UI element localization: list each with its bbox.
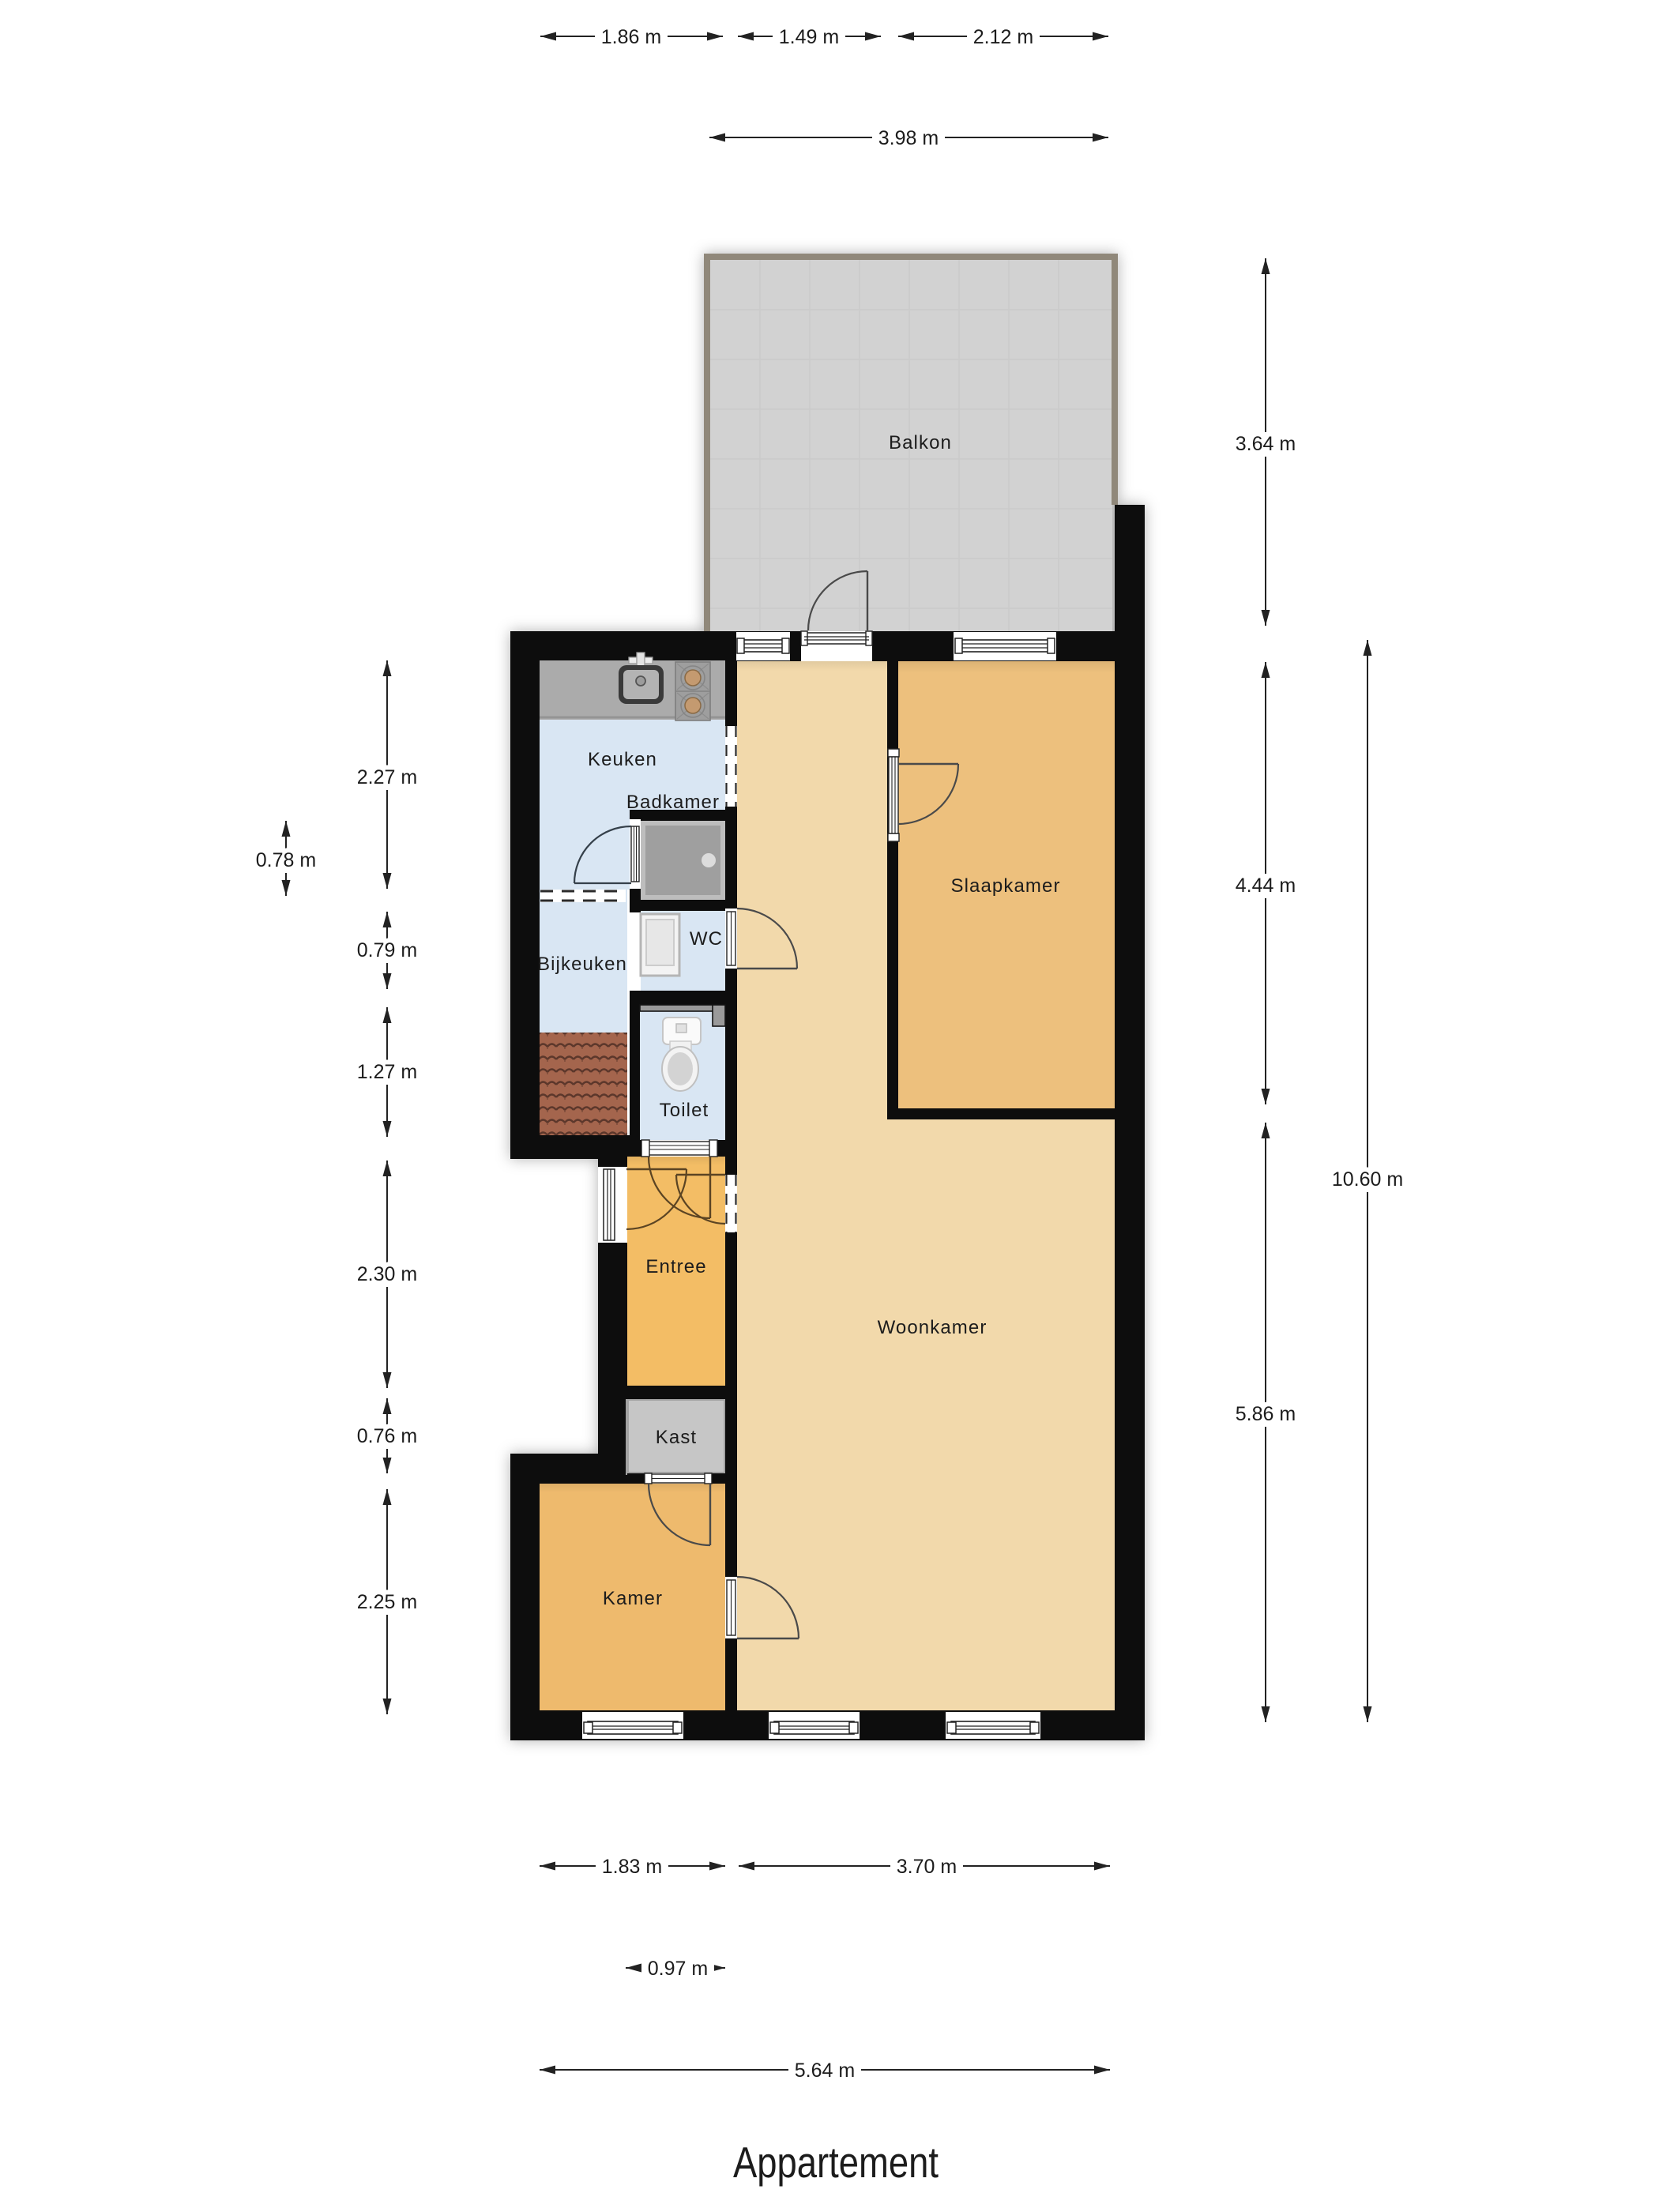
svg-text:1.86 m: 1.86 m [601,26,661,48]
svg-text:Balkon: Balkon [889,432,952,453]
svg-text:0.97 m: 0.97 m [648,1958,708,1980]
svg-text:2.25 m: 2.25 m [357,1591,417,1613]
svg-text:2.12 m: 2.12 m [973,26,1033,48]
svg-text:Appartement: Appartement [733,2138,939,2187]
svg-text:10.60 m: 10.60 m [1332,1168,1403,1191]
svg-text:1.27 m: 1.27 m [357,1061,417,1083]
svg-text:Woonkamer: Woonkamer [878,1317,987,1338]
svg-text:Kamer: Kamer [603,1588,663,1609]
svg-text:WC: WC [690,928,723,950]
svg-text:Badkamer: Badkamer [626,792,720,813]
svg-text:5.86 m: 5.86 m [1236,1403,1296,1425]
svg-text:3.70 m: 3.70 m [897,1856,957,1878]
svg-text:Toilet: Toilet [660,1100,709,1121]
svg-text:0.76 m: 0.76 m [357,1425,417,1447]
svg-text:Slaapkamer: Slaapkamer [950,875,1060,897]
svg-text:1.49 m: 1.49 m [779,26,839,48]
svg-text:1.83 m: 1.83 m [602,1856,662,1878]
svg-text:0.78 m: 0.78 m [256,849,316,871]
svg-text:3.98 m: 3.98 m [878,127,939,149]
svg-text:2.30 m: 2.30 m [357,1263,417,1285]
svg-text:Bijkeuken: Bijkeuken [537,954,627,975]
svg-text:4.44 m: 4.44 m [1236,875,1296,897]
svg-text:3.64 m: 3.64 m [1236,433,1296,455]
svg-text:Entree: Entree [645,1256,706,1277]
svg-text:0.79 m: 0.79 m [357,939,417,961]
svg-text:Kast: Kast [656,1427,697,1448]
svg-text:2.27 m: 2.27 m [357,766,417,788]
svg-text:5.64 m: 5.64 m [795,2060,855,2082]
svg-text:Keuken: Keuken [588,749,657,770]
